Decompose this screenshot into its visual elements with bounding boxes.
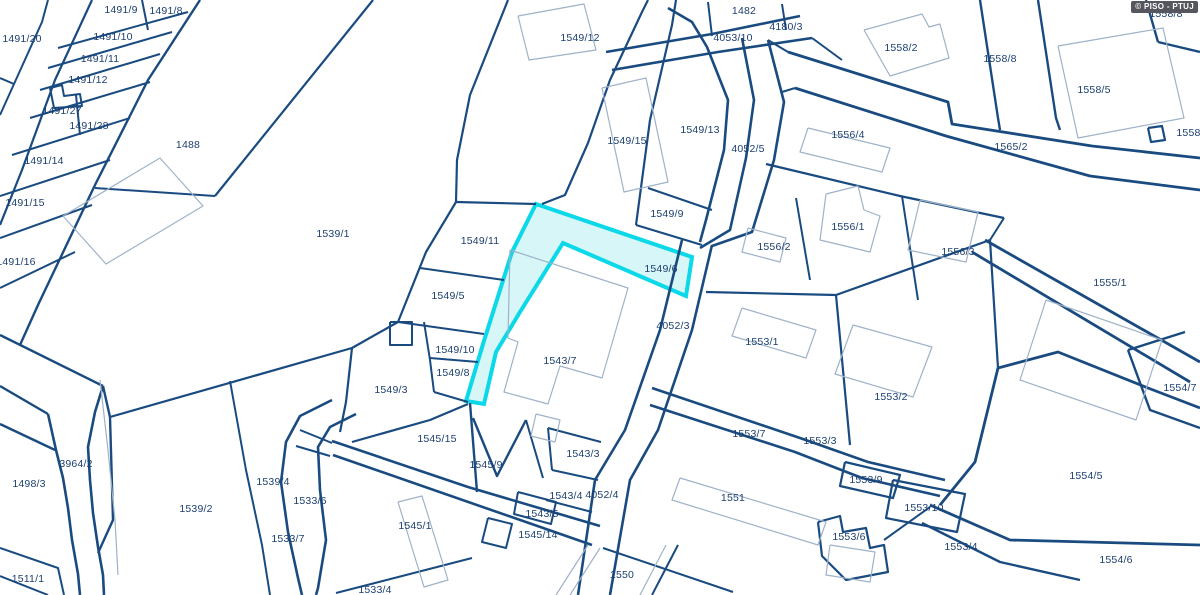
parcel-label-1554-6: 1554/6 (1099, 554, 1132, 566)
parcel-label-1491-12: 1491/12 (68, 74, 107, 86)
parcel-boundary (0, 335, 103, 386)
parcel-label-1549-6: 1549/6 (644, 263, 677, 275)
parcel-boundary (0, 424, 55, 450)
cadastral-map-canvas[interactable]: 1491/91491/81491/201491/101491/111491/12… (0, 0, 1200, 595)
parcel-boundary (648, 188, 712, 210)
parcel-label-1491-9: 1491/9 (104, 4, 137, 16)
parcel-boundary (552, 470, 598, 480)
parcel-label-1553-6: 1553/6 (832, 531, 865, 543)
parcel-label-1491-8: 1491/8 (149, 5, 182, 17)
parcel-label-1549-10: 1549/10 (435, 344, 474, 356)
parcel-boundary (332, 441, 600, 526)
building-outline (556, 545, 588, 595)
parcel-boundary (940, 368, 998, 505)
parcel-label-1554-5: 1554/5 (1069, 470, 1102, 482)
parcel-label-1549-3: 1549/3 (374, 384, 407, 396)
parcel-label-1549-8: 1549/8 (436, 367, 469, 379)
parcel-boundary (902, 196, 918, 300)
parcel-label-1488: 1488 (176, 139, 200, 151)
parcel-label-1491-11: 1491/11 (81, 53, 120, 65)
parcel-boundary (336, 558, 472, 593)
building-outline (398, 496, 448, 587)
parcel-boundary (470, 403, 477, 492)
parcel-label-1533-4: 1533/4 (358, 584, 391, 595)
parcel-label-1549-13: 1549/13 (680, 124, 719, 136)
parcel-label-1543-7: 1543/7 (543, 355, 576, 367)
parcel-boundary (980, 0, 1000, 130)
parcel-label-1491-14: 1491/14 (24, 155, 63, 167)
parcel-boundary (230, 381, 270, 595)
parcel-boundary (990, 218, 1004, 240)
parcel-boundary (812, 38, 842, 60)
parcel-label-1491-15: 1491/15 (5, 197, 44, 209)
building-outline (1020, 300, 1162, 420)
parcel-label-1558-2: 1558/2 (884, 42, 917, 54)
building-outline (732, 308, 816, 358)
parcel-label-1553-2: 1553/2 (874, 391, 907, 403)
parcel-label-3964-2: 3964/2 (59, 458, 92, 470)
parcel-label-1498-3: 1498/3 (12, 478, 45, 490)
parcel-boundary (0, 0, 48, 115)
parcel-boundary (1158, 42, 1200, 52)
parcel-boundary (930, 505, 1200, 545)
parcel-boundary (340, 202, 456, 432)
parcel-boundary (998, 352, 1200, 408)
parcel-boundary (1148, 126, 1165, 142)
parcel-boundary (98, 386, 113, 553)
parcel-boundary (612, 38, 812, 70)
parcel-boundary (88, 386, 104, 595)
parcel-label-4052-4: 4052/4 (585, 489, 618, 501)
parcel-boundary (990, 240, 998, 368)
parcel-label-1556-1: 1556/1 (831, 221, 864, 233)
parcel-label-1551: 1551 (721, 492, 745, 504)
highlighted-parcel-1549/6[interactable] (466, 204, 692, 404)
parcel-label-1539-1: 1539/1 (316, 228, 349, 240)
parcel-label-4052-5: 4052/5 (731, 143, 764, 155)
parcel-boundary (542, 0, 648, 204)
building-outline (835, 325, 932, 397)
parcel-boundary (578, 240, 682, 595)
parcel-label-1549-5: 1549/5 (431, 290, 464, 302)
parcel-boundary (796, 198, 810, 280)
parcel-boundary (0, 386, 48, 414)
parcel-label-1543-3: 1543/3 (566, 448, 599, 460)
parcel-label-1555-1: 1555/1 (1093, 277, 1126, 289)
parcel-label-1549-9: 1549/9 (650, 208, 683, 220)
parcel-boundary (434, 392, 468, 402)
parcel-label-1545-15: 1545/15 (417, 433, 456, 445)
parcel-label-1553-10: 1553/10 (904, 502, 943, 514)
parcel-label-1543-5: 1543/5 (525, 508, 558, 520)
parcel-label-1553-7: 1553/7 (732, 428, 765, 440)
parcel-boundary (424, 322, 434, 392)
parcel-label-1491-28: 1491/28 (69, 120, 108, 132)
parcel-label-4180-3: 4180/3 (769, 21, 802, 33)
parcel-boundary (1038, 0, 1060, 130)
parcel-boundary (296, 446, 330, 456)
piso-ptuj-watermark: © PISO - PTUJ (1131, 1, 1198, 13)
parcel-label-1556-4: 1556/4 (831, 129, 864, 141)
parcel-label-1549-12: 1549/12 (560, 32, 599, 44)
parcel-boundary (548, 428, 552, 470)
parcel-boundary (398, 322, 484, 334)
parcel-boundary (836, 295, 850, 445)
building-outline (63, 158, 203, 264)
parcel-boundary (456, 0, 508, 202)
parcel-label-1511-1: 1511/1 (12, 573, 45, 585)
parcel-label-1533-6: 1533/6 (293, 495, 326, 507)
parcel-boundary (456, 202, 536, 204)
parcel-boundary (0, 78, 14, 84)
parcel-label-1539-4: 1539/4 (256, 476, 289, 488)
building-outline (820, 186, 880, 252)
parcel-boundary (782, 88, 795, 92)
parcel-label-1533-7: 1533/7 (271, 533, 304, 545)
parcel-label-1565-2: 1565/2 (994, 141, 1027, 153)
parcel-boundary (706, 292, 836, 295)
parcel-boundary (430, 358, 478, 362)
parcel-label-1539-2: 1539/2 (179, 503, 212, 515)
building-outline (672, 478, 826, 545)
parcel-boundary (482, 518, 512, 548)
parcel-boundary (526, 420, 543, 478)
parcel-label-1553-9: 1553/9 (849, 474, 882, 486)
parcel-label-1558-5: 1558/5 (1077, 84, 1110, 96)
parcel-label-1545-14: 1545/14 (518, 529, 557, 541)
parcel-boundary (420, 268, 504, 280)
parcel-label-1553-4: 1553/4 (944, 541, 977, 553)
parcel-label-1491-20: 1491/20 (2, 33, 41, 45)
parcel-label-4052-3: 4052/3 (656, 320, 689, 332)
parcel-label-1553-3: 1553/3 (803, 435, 836, 447)
parcel-boundary (215, 0, 373, 196)
parcel-label-1491-16: 1491/16 (0, 256, 36, 268)
parcel-label-4053-10: 4053/10 (713, 32, 752, 44)
parcel-boundary (95, 188, 215, 196)
parcel-label-1554-7: 1554/7 (1163, 382, 1196, 394)
parcel-label-1545-1: 1545/1 (398, 520, 431, 532)
parcel-label-1558-8: 1558/8 (983, 53, 1016, 65)
parcel-label-1491-10: 1491/10 (93, 31, 132, 43)
parcel-label-1553-1: 1553/1 (745, 336, 778, 348)
parcel-label-1558-: 1558/ (1176, 127, 1200, 139)
parcel-label-1491-27: 1491/27 (42, 105, 81, 117)
building-outline (640, 545, 666, 595)
parcel-boundary (708, 2, 712, 36)
parcel-label-1545-9: 1545/9 (469, 459, 502, 471)
parcel-label-1550: 1550 (610, 569, 634, 581)
parcel-boundary (985, 240, 1200, 362)
building-outline (531, 414, 560, 442)
parcel-label-1543-4: 1543/4 (549, 490, 582, 502)
parcel-label-1556-3: 1556/3 (941, 246, 974, 258)
parcel-label-1556-2: 1556/2 (757, 241, 790, 253)
parcel-boundary (48, 414, 80, 595)
parcel-boundary (652, 545, 678, 595)
parcel-label-1549-15: 1549/15 (607, 135, 646, 147)
parcel-label-1482: 1482 (732, 5, 756, 17)
parcel-map[interactable]: 1491/91491/81491/201491/101491/111491/12… (0, 0, 1200, 595)
parcel-label-1549-11: 1549/11 (461, 235, 500, 247)
